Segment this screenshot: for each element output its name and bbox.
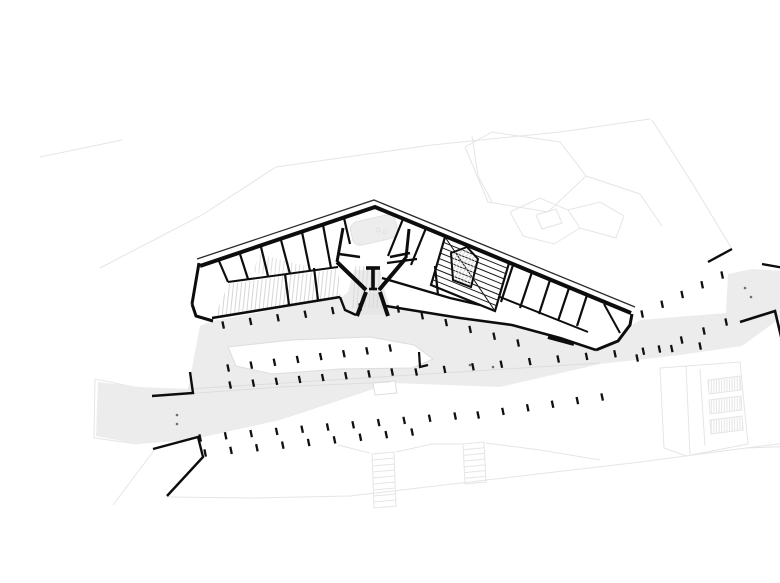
floor-plan-canvas — [40, 16, 780, 567]
paper-background — [40, 16, 780, 567]
architectural-site-plan — [40, 16, 780, 567]
